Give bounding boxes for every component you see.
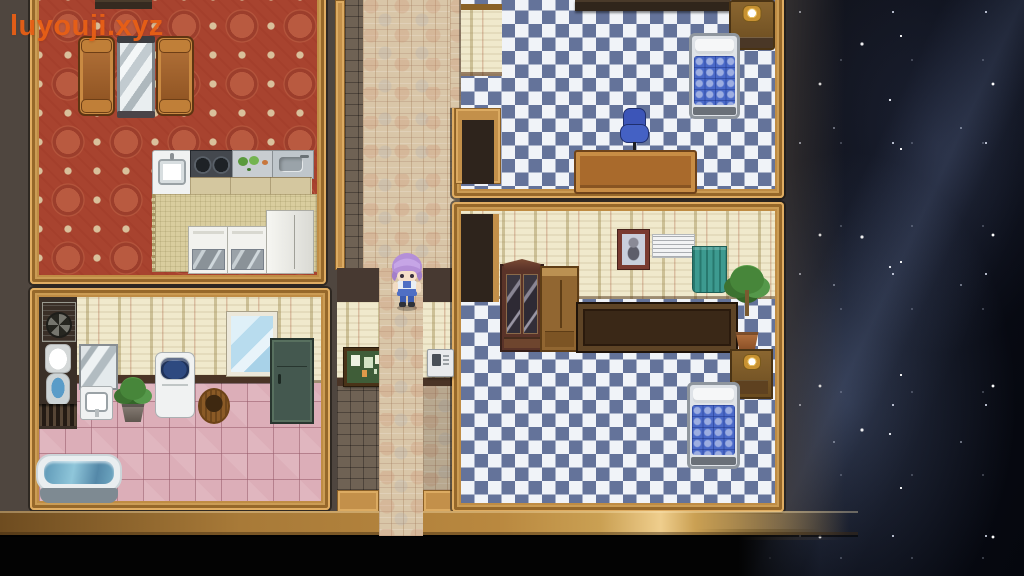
potted-tree (726, 266, 768, 350)
air-conditioner (42, 302, 76, 342)
sofa-right (156, 36, 194, 116)
study-door-opening (462, 120, 494, 184)
bathtub (36, 454, 122, 492)
wicker-basket (198, 388, 230, 424)
bottom-wood-beam (0, 511, 858, 535)
study-doorway (455, 108, 501, 184)
left-wall-base-trim (337, 490, 379, 512)
bedroom-doorway (461, 214, 499, 302)
toilet (44, 344, 72, 406)
wall-intercom (427, 349, 454, 377)
sideboard (576, 302, 738, 353)
desk (574, 150, 697, 194)
teal-curtain (692, 246, 727, 293)
study-wall-segment (461, 4, 502, 76)
sofa-left (78, 36, 115, 116)
right-wall-bricks (423, 386, 453, 490)
washing-machine (155, 352, 195, 418)
portrait (617, 229, 650, 270)
tree-trunk (745, 290, 749, 316)
right-wall-ledge (423, 378, 453, 386)
corridor-lower-right-wall (423, 268, 453, 512)
player-character (389, 250, 425, 312)
corridor-shadow-bricks (345, 0, 363, 270)
left-wall-bricks (337, 386, 379, 490)
corridor-floor (363, 0, 460, 270)
game-viewport[interactable]: luyouji.xyz (0, 0, 1024, 576)
open-wall-section (450, 0, 461, 108)
bathroom-plant (116, 378, 150, 422)
counter-base (190, 177, 312, 194)
green-locker (270, 338, 314, 424)
second-sink (272, 150, 314, 179)
plant-foliage (120, 378, 146, 400)
bottom-void (0, 529, 820, 576)
wardrobe (540, 266, 579, 352)
player-sprite (389, 250, 425, 312)
chair-seat (620, 124, 649, 143)
kitchen-sink (152, 150, 192, 198)
wall-mirror (79, 344, 118, 390)
bath-water (44, 461, 114, 484)
toilet-tank (45, 344, 71, 373)
tree-pot (734, 332, 760, 350)
cabinet-pane-right (523, 274, 538, 334)
bathtub-base (40, 488, 118, 503)
office-chair (618, 108, 651, 154)
watermark: luyouji.xyz (10, 10, 164, 43)
bed-pillow (693, 388, 734, 403)
bed-quilt (694, 56, 735, 105)
window-blinds (652, 234, 695, 258)
bed-foot (693, 107, 736, 115)
bed-bedroom (687, 382, 740, 469)
bed-study (689, 33, 740, 119)
standing-mirror (117, 40, 155, 114)
dish-cabinet-1 (188, 226, 229, 274)
corridor-lower-left-wall (337, 268, 379, 512)
dish-cabinet-2 (227, 226, 268, 274)
bed-quilt (692, 405, 735, 455)
stove (190, 150, 234, 179)
bed-foot (691, 457, 736, 465)
right-wall-base-trim (423, 490, 453, 512)
corridor-left-trim (335, 0, 345, 270)
floor-grate (39, 404, 77, 426)
counter-vegetables (232, 150, 274, 179)
bed-pillow (695, 39, 734, 54)
plant-pot (120, 404, 146, 422)
cabinet-pane-left (506, 274, 521, 334)
wall-shelf (575, 0, 730, 11)
toilet-bowl (46, 373, 70, 406)
wall-console (95, 0, 152, 9)
washbasin (80, 386, 113, 420)
refrigerator (266, 210, 314, 274)
display-cabinet (500, 264, 544, 352)
